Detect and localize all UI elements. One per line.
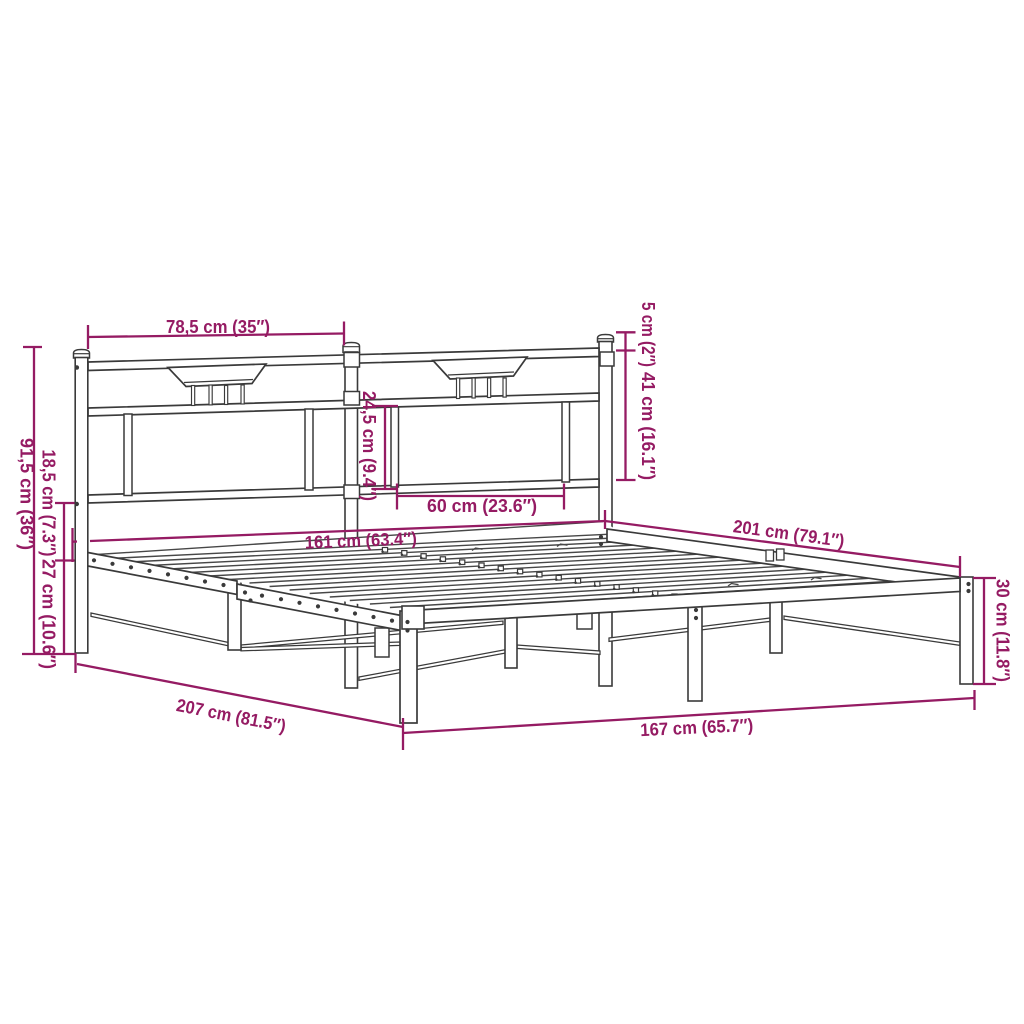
svg-text:5 cm (2″): 5 cm (2″) [638, 302, 658, 367]
svg-text:24,5 cm (9.4″): 24,5 cm (9.4″) [359, 391, 379, 501]
svg-text:41 cm (16.1″): 41 cm (16.1″) [638, 372, 658, 480]
svg-text:30 cm (11.8″): 30 cm (11.8″) [993, 579, 1013, 682]
svg-text:60 cm (23.6″): 60 cm (23.6″) [427, 496, 537, 516]
svg-text:18,5 cm (7.3″): 18,5 cm (7.3″) [39, 450, 59, 557]
svg-text:27 cm (10.6″): 27 cm (10.6″) [39, 559, 59, 669]
svg-text:78,5 cm (35″): 78,5 cm (35″) [166, 317, 270, 337]
svg-text:91,5 cm (36″): 91,5 cm (36″) [17, 438, 37, 550]
